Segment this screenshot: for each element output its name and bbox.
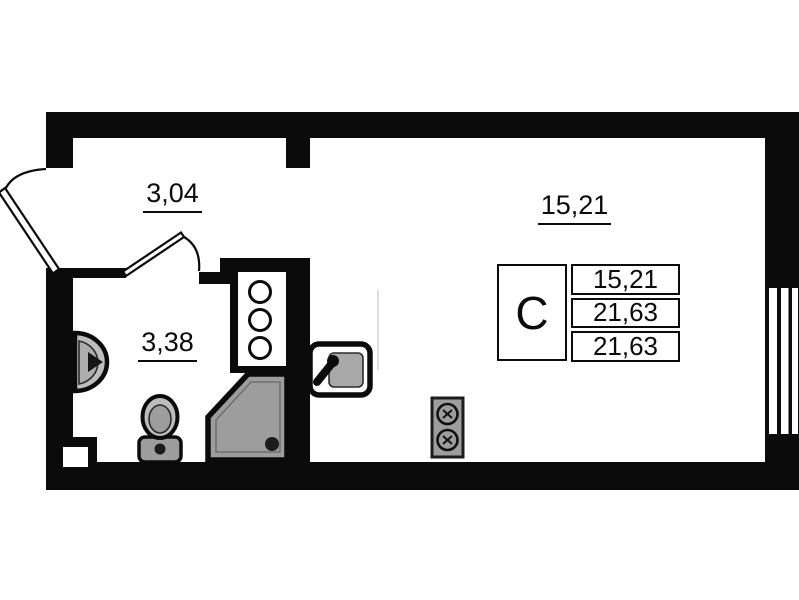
pipe-circle-2 xyxy=(250,310,271,331)
kitchen-sink-icon xyxy=(310,344,370,395)
entry-left-pillar xyxy=(46,112,73,168)
area-summary-table: С 15,21 21,63 21,63 xyxy=(497,264,680,362)
window-opening xyxy=(769,288,798,434)
living-area-cell: 15,21 xyxy=(571,264,680,295)
hallway-area-value: 3,04 xyxy=(143,178,202,213)
area-values-column: 15,21 21,63 21,63 xyxy=(571,264,680,362)
pipe-circle-3 xyxy=(250,338,271,359)
corner-duct-hole xyxy=(63,447,88,467)
hallway-area-label: 3,04 xyxy=(125,178,220,213)
bathroom-area-label: 3,38 xyxy=(120,327,215,362)
entry-door-leaf xyxy=(0,188,59,274)
entry-door-arc xyxy=(5,169,46,190)
toilet-tank-button xyxy=(155,444,166,455)
hallway-partition-pillar xyxy=(286,138,310,168)
living-area-label: 15,21 xyxy=(527,190,622,225)
riser-shaft-icon xyxy=(230,272,290,373)
sink-faucet-base xyxy=(327,355,339,367)
washbasin-icon xyxy=(75,333,107,391)
overall-area-cell: 21,63 xyxy=(571,331,680,362)
living-area-value: 15,21 xyxy=(538,190,612,225)
faint-print-artifact xyxy=(377,290,379,370)
entry-door-icon xyxy=(0,169,59,274)
window-icon xyxy=(769,288,798,434)
apartment-type-letter: С xyxy=(497,264,567,361)
bottom-wall xyxy=(46,462,799,490)
stove-icon xyxy=(432,398,463,457)
bathroom-door-icon xyxy=(123,233,199,277)
bathroom-area-value: 3,38 xyxy=(138,327,197,362)
shower-drain xyxy=(265,437,279,451)
window-mullion-1 xyxy=(777,288,781,434)
bathroom-door-leaf xyxy=(123,233,184,277)
bathroom-door-arc xyxy=(184,237,199,271)
floor-plan: 3,04 3,38 15,21 С 15,21 21,63 21,63 xyxy=(0,0,799,600)
toilet-bowl-inner xyxy=(149,405,171,433)
window-mullion-2 xyxy=(789,288,793,434)
top-wall xyxy=(46,112,799,138)
shaft-left-border xyxy=(230,272,238,373)
toilet-icon xyxy=(139,396,181,462)
total-area-cell: 21,63 xyxy=(571,298,680,329)
shower-icon xyxy=(208,374,287,460)
pipe-circle-1 xyxy=(250,282,271,303)
